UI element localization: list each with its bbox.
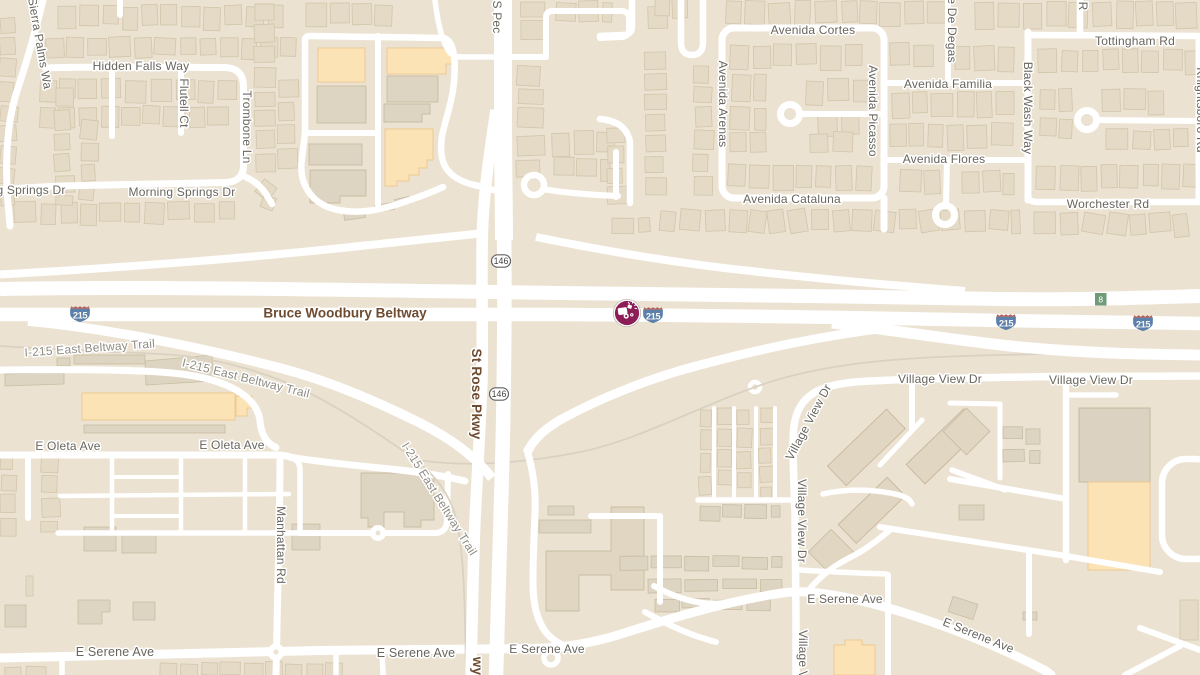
svg-text:Black Wash Way: Black Wash Way — [1021, 62, 1035, 155]
svg-text:Avenida Arenas: Avenida Arenas — [716, 61, 730, 148]
svg-text:Morning Springs Dr: Morning Springs Dr — [129, 185, 236, 199]
svg-text:Flutell Ct: Flutell Ct — [177, 78, 191, 128]
svg-text:E Serene Ave: E Serene Ave — [509, 642, 585, 656]
svg-text:E Serene Ave: E Serene Ave — [807, 592, 883, 606]
svg-text:Worchester Rd: Worchester Rd — [1067, 197, 1149, 211]
svg-text:Bruce Woodbury Beltway: Bruce Woodbury Beltway — [263, 306, 427, 321]
svg-text:Manhattan Rd: Manhattan Rd — [274, 506, 288, 584]
svg-text:215: 215 — [999, 317, 1013, 328]
svg-text:215: 215 — [1136, 318, 1150, 329]
svg-text:wy: wy — [470, 656, 485, 675]
svg-text:Village View Dr: Village View Dr — [898, 372, 982, 386]
svg-text:e De Degas: e De Degas — [945, 0, 959, 63]
svg-text:215: 215 — [646, 310, 660, 321]
svg-text:Tottingham Rd: Tottingham Rd — [1095, 34, 1175, 48]
svg-text:E Oleta Ave: E Oleta Ave — [199, 438, 264, 452]
svg-text:Avenida Picasso: Avenida Picasso — [866, 65, 880, 157]
svg-text:146: 146 — [492, 389, 507, 399]
svg-text:E Serene Ave: E Serene Ave — [377, 646, 456, 660]
svg-text:8: 8 — [1098, 295, 1103, 305]
svg-text:g Springs Dr: g Springs Dr — [0, 183, 66, 197]
svg-text:S Pec: S Pec — [490, 0, 504, 33]
svg-text:R: R — [1076, 2, 1090, 11]
svg-text:Avenida Familia: Avenida Familia — [904, 77, 992, 91]
svg-text:Village View Dr: Village View Dr — [796, 630, 810, 675]
svg-text:Village View Dr: Village View Dr — [795, 479, 809, 563]
svg-text:215: 215 — [73, 309, 87, 320]
svg-text:St Rose Pkwy: St Rose Pkwy — [469, 349, 484, 440]
svg-text:146: 146 — [494, 256, 509, 266]
svg-text:Trombone Ln: Trombone Ln — [240, 90, 254, 163]
svg-text:Hidden Falls Way: Hidden Falls Way — [93, 59, 190, 73]
svg-text:E Oleta Ave: E Oleta Ave — [35, 439, 100, 453]
svg-text:Avenida Cataluna: Avenida Cataluna — [743, 192, 841, 206]
svg-text:E Serene Ave: E Serene Ave — [76, 645, 155, 659]
svg-text:Village View Dr: Village View Dr — [1049, 373, 1133, 387]
svg-text:Knightsboro Rd: Knightsboro Rd — [1194, 67, 1200, 153]
svg-text:Avenida Cortes: Avenida Cortes — [771, 23, 856, 37]
svg-text:Avenida Flores: Avenida Flores — [903, 152, 986, 166]
